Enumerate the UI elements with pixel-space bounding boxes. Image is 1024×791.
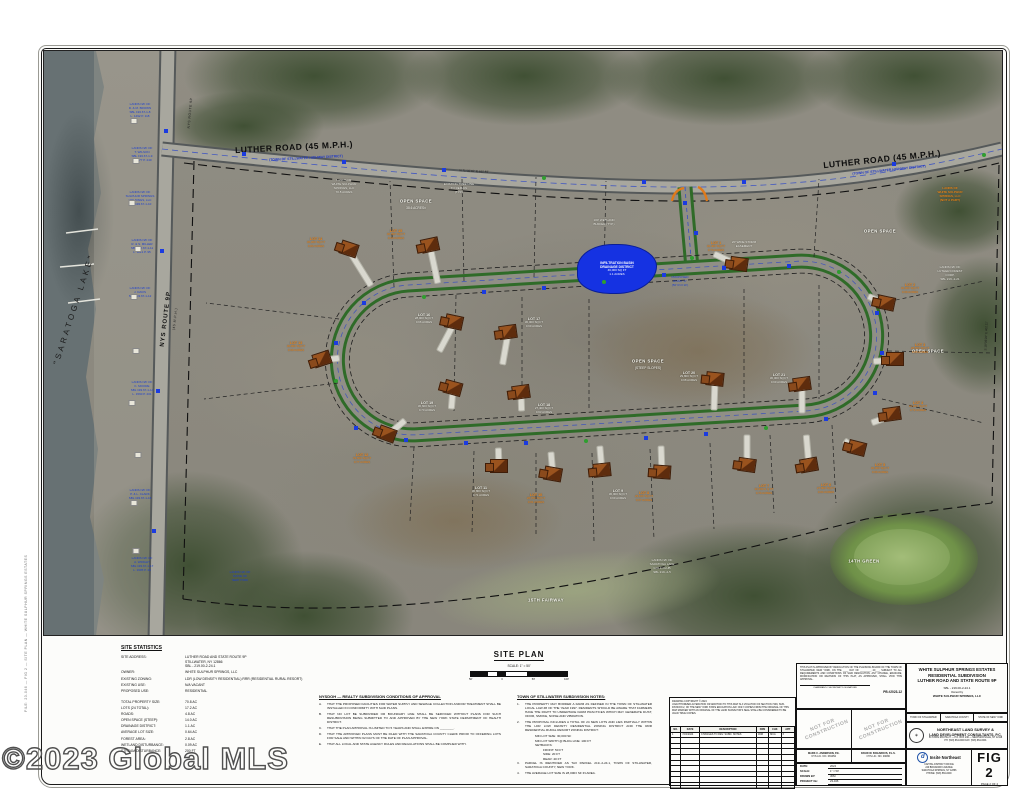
stats-label: EXISTING USE:	[121, 683, 185, 688]
house	[543, 466, 563, 483]
note-text: PARCEL IS IDENTIFIED AS TAX PARCEL 219.-…	[525, 761, 652, 769]
jurisdiction-cell: STATE OF NEW YORK	[974, 714, 1007, 721]
rev-cell	[756, 782, 768, 788]
figure-number: FIG 2	[972, 750, 1007, 780]
scale-bar-label: 50'	[532, 678, 535, 681]
utility-marker	[404, 438, 408, 442]
lot-label-line: 0.77 ACRES	[353, 461, 371, 465]
lot-label: LOT 1628,900 SQ FT0.66 ACRES	[415, 313, 433, 325]
insite-address: CAPITAL DISTRICT OFFICE240 BROADWAY AVEN…	[909, 764, 969, 776]
stats-label: DRAINAGE DISTRICT:	[121, 724, 185, 729]
parcel-note: LANDS N/F OFLUTHER FORESTCORP.SBL 219.-2…	[937, 266, 962, 282]
lot-label: LOT 1827,400 SQ FT0.63 ACRES	[535, 403, 553, 415]
stats-value: 17.2 AC	[185, 706, 321, 711]
parcel-note: LANDS N/F OFP. & L. CLARKSBL 193.67-1-16	[129, 489, 152, 501]
utility-marker	[602, 280, 606, 284]
drawing-field: PROJECT No:23-046	[800, 781, 902, 785]
note-item: FRONT: 50 FT	[517, 748, 652, 752]
note-prefix	[527, 734, 535, 738]
house	[729, 256, 749, 272]
stats-row: DRAINAGE DISTRICT:1.1 AC	[121, 724, 321, 729]
map-label: OPEN SPACE	[632, 359, 664, 364]
note-prefix: 3.	[517, 761, 525, 769]
note-text: THAT THE APPROVED PLANS MUST BE FILED WI…	[327, 732, 501, 740]
not-for-construction-stamp: NOT FOR CONSTRUCTION	[797, 710, 852, 748]
drawing-field: DATE:2024	[800, 766, 902, 770]
stats-label: SITE ADDRESS:	[121, 655, 185, 669]
map-linework	[44, 51, 1002, 635]
utility-marker	[156, 389, 160, 393]
note-prefix: D.	[319, 732, 327, 740]
stats-row: OWNER:WHITE SULPHUR SPRINGS, LLC	[121, 670, 321, 675]
drawing-title-text: SITE PLAN	[494, 650, 545, 661]
site-statistics-rows: SITE ADDRESS:LUTHER ROAD AND STATE ROUTE…	[121, 655, 321, 754]
stats-row: EXISTING ZONING:LDR (LOW DENSITY RESIDEN…	[121, 677, 321, 682]
utility-marker	[837, 270, 841, 274]
utility-marker	[694, 231, 698, 235]
pls-name-cell: DAVID W. BOGARDUS, P.L.S. NYS LIC. NO. 4…	[852, 750, 906, 762]
lot-label: LOT 2029,800 SQ FT0.68 ACRES	[680, 371, 698, 383]
house	[498, 324, 518, 340]
parcel-note-line: SBL 219.-2-5	[650, 571, 675, 575]
insite-name: Insite Northeast	[930, 755, 961, 760]
utility-marker	[542, 176, 546, 180]
insite-address-line: PHONE: (518) 584-0000	[909, 773, 969, 776]
lot-label-line: 0.72 ACRES	[909, 409, 927, 413]
stats-value-line: N/A VACANT	[185, 683, 321, 688]
parcel-note: LANDS N/F OFD. & M. BROWNSBL 193.67-1-8L…	[129, 103, 151, 119]
note-item: D.THAT THE APPROVED PLANS MUST BE FILED …	[319, 732, 501, 740]
parcel-note-line: NEW YORK	[230, 579, 251, 583]
stats-value: N/A VACANT	[185, 683, 321, 688]
lot-label-line: 0.67 ACRES	[635, 499, 653, 503]
stats-row: LOTS (24 TOTAL):17.2 AC	[121, 706, 321, 711]
graphic-scale-bar	[470, 671, 568, 677]
parcel-note-line: SBL 219.-2-21	[937, 278, 962, 282]
stats-row: ROADS:4.8 AC	[121, 712, 321, 717]
utility-marker	[442, 168, 446, 172]
stats-value: LUTHER ROAD AND STATE ROUTE 9PSTILLWATER…	[185, 655, 321, 669]
lot-label: LOT 1930,600 SQ FT0.70 ACRES	[418, 401, 436, 413]
approval-text: THIS PLAT IS APPROVED BY RESOLUTION OF T…	[800, 666, 902, 681]
note-prefix: A.	[319, 702, 327, 710]
utility-marker	[982, 153, 986, 157]
page: INFILTRATION BASINDRAINAGE DISTRICT46,00…	[0, 0, 1024, 791]
stamp-text: NOT FOR CONSTRUCTION	[802, 716, 845, 742]
project-sbl: SBL - 219.00-2-24.1	[907, 686, 1007, 690]
lot-label: LOT 530,000 SQ FT0.69 ACRES	[871, 463, 889, 475]
note-text: SETBACKS:	[535, 743, 652, 747]
stats-value-line: SBL - 219.00-2-24.1	[185, 664, 321, 669]
stats-value-line: 0.64 AC	[185, 730, 321, 735]
note-prefix	[535, 752, 543, 756]
rev-row	[671, 782, 795, 788]
note-prefix: B.	[319, 712, 327, 724]
parcel-note: LANDS N/F OFA. WRIGHTSBL 193.67-1-17L. 1…	[131, 557, 154, 573]
lot-label: LOT 730,400 S Q FT0.70 ACRES	[755, 484, 774, 496]
stats-label: EXISTING ZONING:	[121, 677, 185, 682]
lot-label: LOT 1330,000 SQ FT0.69 ACRES	[287, 341, 305, 353]
planning-board-approval: THIS PLAT IS APPROVED BY RESOLUTION OF T…	[796, 663, 906, 709]
note-item: MIN LOT WIDTH @ BLDG LINE: 100 FT	[517, 739, 652, 743]
parcel-note: 100' WETLANDBUFFER (TYP.)	[593, 219, 614, 227]
stats-value-line: 14.0 AC	[185, 718, 321, 723]
note-text: REAR: 40 FT	[543, 757, 652, 761]
lot-label: LOT 1730,000 SQ FT0.69 ACRES	[525, 317, 543, 329]
plan-sheet: INFILTRATION BASINDRAINAGE DISTRICT46,00…	[38, 45, 1010, 788]
lot-label-line: 0.63 ACRES	[535, 411, 553, 415]
note-item: 4.THE AVERAGE LOT SIZE IS 28,000± SF IN …	[517, 771, 652, 775]
utility-marker	[787, 264, 791, 268]
note-item: SETBACKS:	[517, 743, 652, 747]
note-item: REAR: 40 FT	[517, 757, 652, 761]
utility-marker	[422, 295, 426, 299]
stats-label: ROADS:	[121, 712, 185, 717]
note-text: THAT THE PROPOSED FACILITIES FOR WATER S…	[327, 702, 501, 710]
stats-value: WHITE SULPHUR SPRINGS, LLC	[185, 670, 321, 675]
drawing-field: SCALE:1" = 50'	[800, 771, 902, 775]
parcel-note-line: (TYP.)	[444, 191, 474, 195]
sheet-edge-note: FILE: 23-046 — FIG 2 — SITE PLAN — WHITE…	[24, 555, 28, 712]
stamps-row: NOT FOR CONSTRUCTION NOT FOR CONSTRUCTIO…	[796, 709, 906, 749]
drawing-title: SITE PLAN SCALE: 1" = 50' 50'050'100'	[459, 644, 579, 681]
nysdoh-notes-items: A.THAT THE PROPOSED FACILITIES FOR WATER…	[319, 702, 501, 746]
utility-marker	[742, 180, 746, 184]
drawing-field-value: JDM	[828, 776, 902, 780]
map-label: 15TH FAIRWAY	[528, 598, 564, 603]
stillwater-notes-title: TOWN OF STILLWATER SUBDIVISION NOTES:	[517, 694, 652, 699]
scale-bar-label: 100'	[564, 678, 569, 681]
project-title-line: WHITE SULPHUR SPRINGS ESTATES	[907, 667, 1007, 673]
utility-marker	[824, 417, 828, 421]
stats-row: EXISTING USE:N/A VACANT	[121, 683, 321, 688]
site-statistics-title: SITE STATISTICS	[121, 645, 321, 651]
page-number: PAGE 2 OF 4	[972, 782, 1007, 786]
utility-marker	[642, 180, 646, 184]
jurisdiction-cell: SARATOGA COUNTY	[941, 714, 975, 721]
utility-marker	[584, 439, 588, 443]
stats-label: TOTAL PROPERTY SIZE:	[121, 700, 185, 705]
parcel-note-line: 70.8 ACRES	[332, 191, 357, 195]
lot-label-line: 0.66 ACRES	[415, 321, 433, 325]
parcel-note: LANDS OFWHITE SULPHURSPRINGS, LLC70.8 AC…	[332, 179, 357, 195]
signature-line: CHAIRMAN'S / SECRETARY'S SIGNATURE	[800, 685, 870, 689]
stats-label: OPEN SPACE (STEEP):	[121, 718, 185, 723]
lot-label-line: 0.69 ACRES	[871, 471, 889, 475]
stats-label: LOTS (24 TOTAL):	[121, 706, 185, 711]
utility-marker	[875, 311, 879, 315]
note-text: SIDE: 20 FT	[543, 752, 652, 756]
utility-marker	[129, 400, 136, 406]
stillwater-notes: TOWN OF STILLWATER SUBDIVISION NOTES: 1.…	[517, 694, 652, 777]
parcel-note: LANDS OFWHITE SULPHURSPRINGS, LLC(NOT A …	[938, 187, 963, 203]
scale-bar-segment	[497, 672, 506, 676]
lot-label: LOT 1530,000 SQ FT0.69 ACRES	[387, 229, 405, 241]
parcel-note-line: BUFFER (TYP.)	[593, 223, 614, 227]
lot-label: LOT 1233,600 SQ FT0.77 ACRES	[353, 453, 371, 465]
lot-label-line: 0.68 ACRES	[680, 379, 698, 383]
rev-cell	[700, 782, 757, 788]
house	[882, 406, 902, 422]
lot-label-line: 0.69 ACRES	[609, 497, 627, 501]
insite-logo-icon: d	[917, 752, 928, 763]
licensees-row: MARK C. ANDERSON, P.E. NYS LIC. NO. 0810…	[796, 749, 906, 763]
utility-marker	[873, 391, 877, 395]
title-block: DRAWING COPYRIGHT © 2024 UNAUTHORIZED AL…	[669, 663, 1008, 786]
lot-label: LOT 829,100 SQ FT0.67 ACRES	[635, 491, 653, 503]
utility-marker	[334, 341, 338, 345]
stats-value-line: 70.8 AC	[185, 700, 321, 705]
utility-marker	[482, 290, 486, 294]
drawing-fields: DATE:2024SCALE:1" = 50'DRAWN BY:JDMPROJE…	[796, 763, 906, 786]
parcel-note: 20' WIDE STORMEASEMENT	[732, 241, 756, 249]
map-label: OPEN SPACE	[864, 229, 896, 234]
map-label: 14TH GREEN	[848, 559, 879, 564]
parcel-note: EXISTING TREE LINETO REMAIN(TYP.)	[444, 183, 474, 195]
scale-bar-segment	[471, 672, 488, 676]
note-item: 1.THE PROPERTY MAY BORDER A FARM AS DEFI…	[517, 702, 652, 718]
parcel-note: LANDS N/F OFK. MOORESBL 193.67-1-14L. 15…	[131, 381, 154, 397]
stats-value-line: WHITE SULPHUR SPRINGS, LLC	[185, 670, 321, 675]
utility-marker	[342, 160, 346, 164]
stillwater-notes-items: 1.THE PROPERTY MAY BORDER A FARM AS DEFI…	[517, 702, 652, 775]
lot-label-line: 0.69 ACRES	[287, 349, 305, 353]
utility-marker	[129, 200, 136, 206]
stats-value: 14.0 AC	[185, 718, 321, 723]
parcel-note: LANDS N/F OFSTATE OFNEW YORK	[230, 571, 251, 583]
scale-bar-label: 50'	[469, 678, 472, 681]
jurisdiction-cell: TOWN OF STILLWATER	[907, 714, 941, 721]
utility-marker	[722, 266, 726, 270]
rev-cell	[769, 782, 781, 788]
utility-marker	[334, 379, 338, 383]
scale-bar-segment	[527, 672, 567, 676]
survey-firm-box: ✶ NORTHEAST LAND SURVEY & LAND DEVELOPME…	[906, 722, 1008, 749]
lot-label-line: 0.61 ACRES	[527, 501, 545, 505]
lot-label-line: 0.83 ACRES	[307, 245, 325, 249]
note-text: THAT NO LOT BE SUBDIVIDED OR BOUNDARY LI…	[327, 712, 501, 724]
not-for-construction-stamp: NOT FOR CONSTRUCTION	[852, 710, 906, 748]
note-text: THAT THE PLAN APPROVAL IS LIMITED TO 5 Y…	[327, 726, 501, 730]
parcel-note-line: L. 1905 P. 44	[131, 569, 154, 573]
utility-marker	[880, 351, 884, 355]
note-prefix	[535, 757, 543, 761]
utility-marker	[892, 162, 896, 166]
lot-label: LOT 328,500 SQ FT0.65 ACRES	[911, 343, 929, 355]
utility-marker	[764, 426, 768, 430]
stats-value: 0.64 AC	[185, 730, 321, 735]
utility-marker	[131, 500, 138, 506]
drawing-scale-text: SCALE: 1" = 50'	[459, 664, 579, 668]
lot-label: LOT 230,000 SQ FT0.69 ACRES	[901, 283, 919, 295]
utility-marker	[135, 452, 142, 458]
scale-bar-labels: 50'050'100'	[469, 678, 569, 681]
lot-label-line: 0.69 ACRES	[525, 325, 543, 329]
utility-marker	[524, 441, 528, 445]
parcel-note-line: L. 1560 P. 201	[131, 393, 154, 397]
utility-marker	[135, 246, 142, 252]
lot-label: LOT 1130,800 SQ FT0.71 ACRES	[472, 486, 490, 498]
lot-label-line: 0.69 ACRES	[387, 237, 405, 241]
note-text: THE AVERAGE LOT SIZE IS 28,000± SF IN AR…	[525, 771, 652, 775]
utility-marker	[131, 118, 138, 124]
scale-bar-segment	[506, 672, 527, 676]
note-prefix: 1.	[517, 702, 525, 718]
utility-marker	[131, 294, 138, 300]
map-label: 38.6 ACRES±	[406, 206, 426, 210]
stats-row: AVERAGE LOT SIZE:0.64 AC	[121, 730, 321, 735]
note-item: B.THAT NO LOT BE SUBDIVIDED OR BOUNDARY …	[319, 712, 501, 724]
lot-label-line: 0.64 ACRES	[817, 491, 835, 495]
lot-label-line: 0.69 ACRES	[770, 381, 788, 385]
lot-label: LOT 132,400 SQ FT0.74 ACRES	[707, 241, 725, 253]
pls-license: NYS LIC. NO. 49080	[852, 755, 906, 758]
note-text: THE PROPERTY MAY BORDER A FARM AS DEFINE…	[525, 702, 652, 718]
figure-box: FIG 2 PAGE 2 OF 4	[972, 750, 1007, 785]
rev-cell	[781, 782, 794, 788]
parcel-note: PROPOSEDROAD "A"(50' R.O.W.)	[671, 276, 688, 288]
lot-label-line: 0.70 ACRES	[418, 409, 436, 413]
stats-row: OPEN SPACE (STEEP):14.0 AC	[121, 718, 321, 723]
house	[705, 371, 724, 387]
lot-label-line: 0.74 ACRES	[707, 249, 725, 253]
utility-marker	[704, 432, 708, 436]
note-text: MIN LOT SIZE: 30,000 SF	[535, 734, 652, 738]
note-item: MIN LOT SIZE: 30,000 SF	[517, 734, 652, 738]
house	[792, 376, 812, 392]
lot-label-line: 0.70 ACRES	[755, 492, 774, 496]
house	[653, 464, 672, 479]
parcel-note: LANDS N/F OFSARATOGA LAKEGOLF CLUBSBL 21…	[650, 559, 675, 575]
copyright-note: DRAWING COPYRIGHT © 2024 UNAUTHORIZED AL…	[670, 698, 795, 726]
lot-label: LOT 930,000 SQ FT0.69 ACRES	[609, 489, 627, 501]
note-text: MIN LOT WIDTH @ BLDG LINE: 100 FT	[535, 739, 652, 743]
stats-value: 1.1 AC	[185, 724, 321, 729]
pe-name-cell: MARK C. ANDERSON, P.E. NYS LIC. NO. 0810…	[797, 750, 852, 762]
stats-value-line: 17.2 AC	[185, 706, 321, 711]
lot-label: LOT 431,200 SQ FT0.72 ACRES	[909, 401, 927, 413]
firm-address-2: PH: (518) 664-0000 FAX: (518) 664-0001	[926, 740, 1005, 743]
stats-value-line: LDR (LOW DENSITY RESIDENTIAL) RRR (RESID…	[185, 677, 321, 682]
parcel-note-line: (NOT A PART)	[938, 199, 963, 203]
note-prefix: E.	[319, 742, 327, 746]
house	[592, 462, 611, 478]
utility-marker	[662, 273, 666, 277]
approval-number: PB #2023-12	[883, 690, 902, 694]
lot-label: LOT 1026,700 SQ FT0.61 ACRES	[527, 493, 545, 505]
stats-row: SITE ADDRESS:LUTHER ROAD AND STATE ROUTE…	[121, 655, 321, 669]
note-item: 2.THE PROPOSAL INCLUDES A TOTAL OF 24 NE…	[517, 720, 652, 732]
note-item: A.THAT THE PROPOSED FACILITIES FOR WATER…	[319, 702, 501, 710]
drawing-field-value: 2024	[828, 766, 902, 770]
note-prefix: 2.	[517, 720, 525, 732]
house	[737, 457, 757, 473]
lot-label: LOT 1436,200 SQ FT0.83 ACRES	[307, 237, 325, 249]
house	[886, 352, 904, 366]
surveyor-seal-icon: ✶	[909, 728, 924, 743]
utility-marker	[133, 548, 140, 554]
note-item: 3.PARCEL IS IDENTIFIED AS TAX PARCEL 219…	[517, 761, 652, 769]
stats-value-line: 1.1 AC	[185, 724, 321, 729]
pe-license: NYS LIC. NO. 081052	[797, 755, 851, 758]
owner-name: WHITE SULPHUR SPRINGS, LLC	[907, 694, 1007, 698]
stats-value: 70.8 AC	[185, 700, 321, 705]
rev-cell	[671, 782, 681, 788]
stats-label: OWNER:	[121, 670, 185, 675]
note-text: THAT ALL LOCAL AND STATE AGENCY RULES AN…	[327, 742, 501, 746]
parcel-note-line: (50' R.O.W.)	[671, 284, 688, 288]
utility-marker	[683, 201, 687, 205]
note-item: SIDE: 20 FT	[517, 752, 652, 756]
stats-row: TOTAL PROPERTY SIZE:70.8 AC	[121, 700, 321, 705]
map-label: OPEN SPACE	[400, 199, 432, 204]
drawing-field-value: 1" = 50'	[828, 771, 902, 775]
lot-label-line: 0.71 ACRES	[472, 494, 490, 498]
drawing-field-label: PROJECT No:	[800, 781, 828, 785]
utility-marker	[164, 129, 168, 133]
insite-box: d Insite Northeast CAPITAL DISTRICT OFFI…	[907, 750, 972, 785]
utility-marker	[160, 249, 164, 253]
basin-line: 1.1 ACRES	[609, 273, 624, 277]
utility-marker	[133, 158, 140, 164]
stats-value: RESIDENTIAL	[185, 689, 321, 694]
scale-bar-segment	[488, 672, 497, 676]
utility-marker	[152, 529, 156, 533]
lot-label: LOT 2130,000 SQ FT0.69 ACRES	[770, 373, 788, 385]
lot-label-line: 0.69 ACRES	[901, 291, 919, 295]
site-statistics: SITE STATISTICS SITE ADDRESS:LUTHER ROAD…	[121, 645, 321, 755]
utility-marker	[542, 286, 546, 290]
utility-marker	[362, 301, 366, 305]
title-block-bottom-row: d Insite Northeast CAPITAL DISTRICT OFFI…	[906, 749, 1008, 786]
project-title-lines: WHITE SULPHUR SPRINGS ESTATESRESIDENTIAL…	[907, 667, 1007, 684]
parcel-note-line: EASEMENT	[732, 245, 756, 249]
stats-value: 4.8 AC	[185, 712, 321, 717]
note-prefix	[527, 743, 535, 747]
mls-watermark: ©2023 Global MLS	[2, 741, 289, 777]
stats-value: LDR (LOW DENSITY RESIDENTIAL) RRR (RESID…	[185, 677, 321, 682]
revision-block: DRAWING COPYRIGHT © 2024 UNAUTHORIZED AL…	[669, 697, 796, 786]
revision-table: NO.DATEDESCRIPTIONDRNCHKAPP17/24/2024CHA…	[670, 726, 795, 789]
utility-marker	[464, 441, 468, 445]
firm-text: NORTHEAST LAND SURVEY & LAND DEVELOPMENT…	[926, 728, 1005, 743]
utility-marker	[242, 152, 246, 156]
note-prefix: C.	[319, 726, 327, 730]
note-text: THE PROPOSAL INCLUDES A TOTAL OF 24 NEW …	[525, 720, 652, 732]
stamp-text: NOT FOR CONSTRUCTION	[857, 716, 900, 742]
lot-label: LOT 627,800 SQ FT0.64 ACRES	[817, 483, 835, 495]
stats-label: PROPOSED USE:	[121, 689, 185, 694]
note-prefix	[527, 739, 535, 743]
nysdoh-notes: NYSDOH — REALTY SUBDIVISION CONDITIONS O…	[319, 694, 501, 748]
map-label: (STEEP SLOPES)	[635, 366, 661, 370]
stats-value-line: 4.8 AC	[185, 712, 321, 717]
project-title-line: LUTHER ROAD AND STATE ROUTE 9P	[907, 678, 1007, 684]
scale-bar-label: 0	[501, 678, 502, 681]
lot-label-line: 0.65 ACRES	[911, 351, 929, 355]
utility-marker	[690, 256, 694, 260]
nysdoh-notes-title: NYSDOH — REALTY SUBDIVISION CONDITIONS O…	[319, 694, 501, 699]
drawing-field-label: DATE:	[800, 766, 828, 770]
house	[490, 459, 508, 473]
note-prefix	[535, 748, 543, 752]
utility-marker	[644, 436, 648, 440]
rev-cell	[681, 782, 700, 788]
stats-label: AVERAGE LOT SIZE:	[121, 730, 185, 735]
note-item: C.THAT THE PLAN APPROVAL IS LIMITED TO 5…	[319, 726, 501, 730]
drawing-field-value: 23-046	[828, 781, 902, 785]
stats-value-line: RESIDENTIAL	[185, 689, 321, 694]
